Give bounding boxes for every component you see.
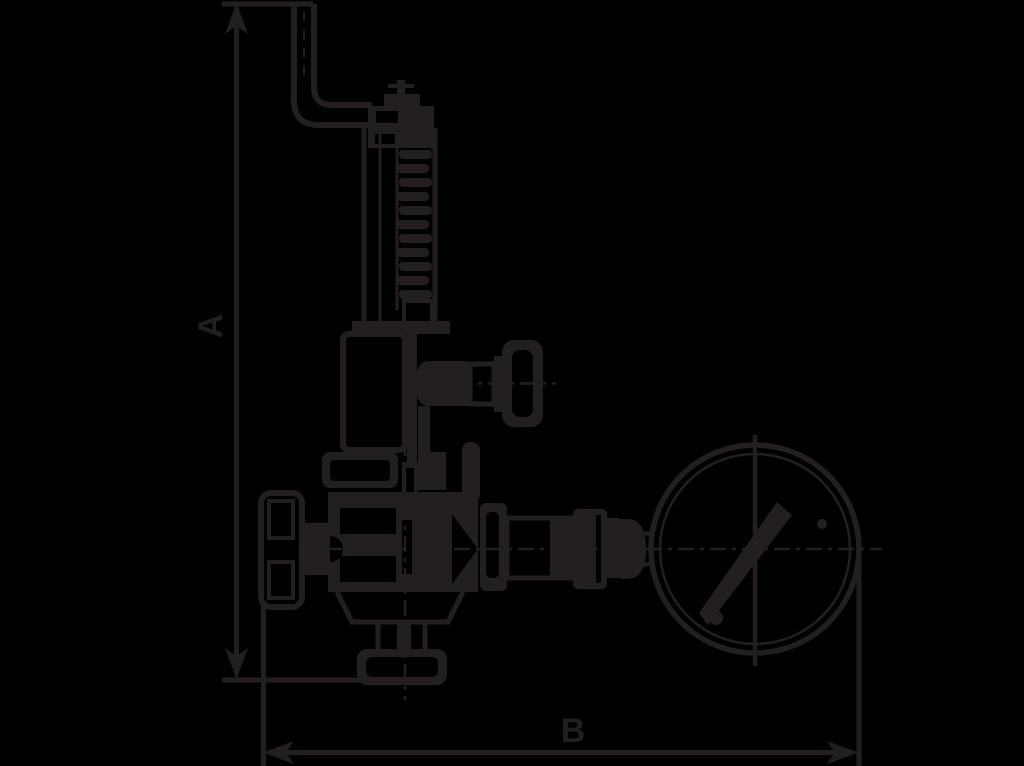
housing-column bbox=[407, 330, 417, 462]
cap-window-lower bbox=[375, 134, 395, 144]
gauge-dial-dot bbox=[817, 519, 827, 529]
housing-column-lower bbox=[418, 406, 430, 490]
fitting-flange-slot bbox=[486, 512, 499, 578]
body-stem-slot bbox=[402, 520, 412, 574]
dimension-b-label: B bbox=[561, 712, 586, 750]
handwheel-spoke-lower bbox=[269, 562, 293, 598]
gauge-needle-hub-dot bbox=[709, 611, 723, 625]
lifting-lever bbox=[294, 4, 372, 125]
cap-nut bbox=[384, 94, 420, 107]
gauge-needle bbox=[699, 502, 792, 625]
inlet-flange-window bbox=[366, 657, 438, 677]
technical-drawing-canvas: A B bbox=[0, 0, 1024, 766]
gauge-connection bbox=[480, 503, 653, 591]
housing-outline bbox=[343, 334, 405, 450]
body-window-lower bbox=[340, 556, 396, 582]
flange-window bbox=[330, 460, 390, 481]
valve-body bbox=[317, 492, 478, 652]
body-taper bbox=[337, 592, 463, 622]
cap-window-upper bbox=[376, 111, 398, 123]
spring-coils bbox=[396, 150, 432, 299]
inlet-flange bbox=[357, 649, 447, 685]
handwheel-spoke-upper bbox=[269, 501, 293, 538]
housing-block bbox=[430, 452, 446, 490]
spring-bonnet bbox=[352, 128, 450, 334]
handwheel-stem bbox=[302, 523, 330, 575]
valve-dimension-drawing: A B bbox=[0, 0, 1024, 766]
body-window-upper bbox=[340, 508, 396, 534]
flange-stem-slot bbox=[406, 468, 414, 496]
adjusting-cap bbox=[368, 80, 434, 148]
adjusting-screw-tick bbox=[388, 84, 414, 88]
lever-inner-edge bbox=[314, 4, 372, 105]
test-knob-assembly bbox=[416, 340, 556, 427]
pressure-gauge bbox=[651, 435, 859, 666]
dimension-a-label: A bbox=[192, 314, 230, 339]
handwheel bbox=[261, 493, 330, 607]
